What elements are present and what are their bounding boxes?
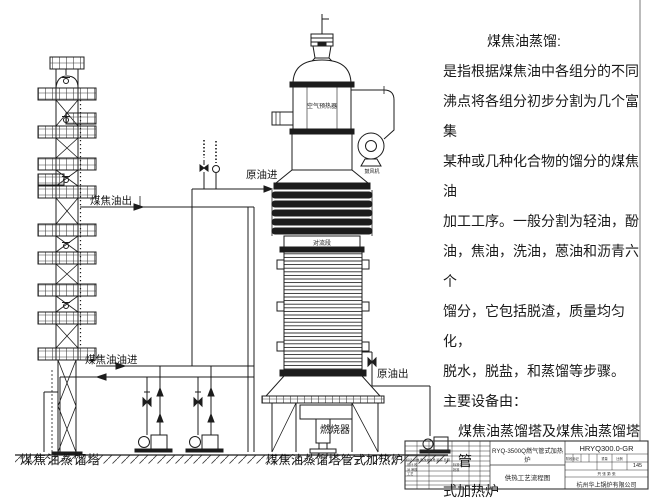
stage-mark-label: 阶段标记 xyxy=(566,456,596,461)
company-name: 杭州华上锅炉有限公司 xyxy=(565,480,648,489)
coal-tar-pump-1 xyxy=(135,435,172,452)
signature-column-1: 设计 校对 审核 工艺 xyxy=(407,463,420,477)
tower-platforms xyxy=(38,88,96,360)
tower-caption: 煤焦油蒸馏塔 xyxy=(20,449,101,468)
burner-label: 燃烧器 xyxy=(320,421,350,436)
weight-label: 重量 xyxy=(598,456,611,461)
description-heading: 煤焦油蒸馏: xyxy=(443,26,647,56)
furnace-caption: 煤焦油蒸馏塔管式加热炉 xyxy=(266,451,404,468)
process-description: 煤焦油蒸馏: 是指根据煤焦油中各组分的不同 沸点将各组分初步分割为几个富集 某种… xyxy=(443,26,647,504)
description-line: 馏分，它包括脱渣，质量均匀化， xyxy=(443,296,647,356)
tube-heating-furnace xyxy=(262,14,394,455)
coal-tar-out-line xyxy=(80,196,254,452)
description-line: 某种或几种化合物的馏分的煤焦油 xyxy=(443,146,647,206)
equipment-heading: 主要设备由： xyxy=(443,386,647,416)
description-line: 脱水，脱盐，和蒸馏等步骤。 xyxy=(443,356,647,386)
coal-tar-out-label: 煤焦油出 xyxy=(90,193,132,208)
title-block-document-title: 供热工艺流程图 xyxy=(490,472,565,482)
revision-header: 标记 处数 更改文件号 签字 日期 xyxy=(406,457,490,462)
coal-tar-pump-2 xyxy=(186,435,223,452)
description-line: 是指根据煤焦油中各组分的不同 xyxy=(443,56,647,86)
title-block-drawing-number: HRYQ300.0-GR xyxy=(565,444,648,453)
description-line: 沸点将各组分初步分割为几个富集 xyxy=(443,86,647,146)
air-preheater-vessel xyxy=(272,60,370,189)
title-block-product-model: RYQ-3500Q燃气管式加热炉 xyxy=(490,446,565,464)
sheet-count-label: 共 张 第 张 xyxy=(565,472,648,477)
coal-tar-oil-in-label: 煤焦油油进 xyxy=(85,352,138,367)
air-preheater-label: 空气预热器 xyxy=(300,101,344,110)
flue-duct xyxy=(351,86,394,139)
process-piping xyxy=(60,140,450,453)
blower xyxy=(358,133,384,166)
convection-section-label: 对流段 xyxy=(286,238,358,247)
description-line: 油，焦油，洗油，蒽油和沥青六个 xyxy=(443,236,647,296)
scale-label: 比例 xyxy=(613,456,626,461)
title-block-scale-value: 145 xyxy=(627,463,648,469)
crude-oil-out-label: 原油出 xyxy=(377,366,409,381)
distillation-tower xyxy=(38,57,96,455)
drawing-sheet: 煤焦油蒸馏: 是指根据煤焦油中各组分的不同 沸点将各组分初步分割为几个富集 某种… xyxy=(0,0,650,504)
signature-column-2: 标准化 批准 xyxy=(453,463,466,472)
blower-label: 鼓风机 xyxy=(357,168,387,175)
radiant-coil-section xyxy=(277,252,369,376)
description-line: 加工工序。一般分割为轻油，酚 xyxy=(443,206,647,236)
crude-oil-in-label: 原油进 xyxy=(246,167,278,182)
